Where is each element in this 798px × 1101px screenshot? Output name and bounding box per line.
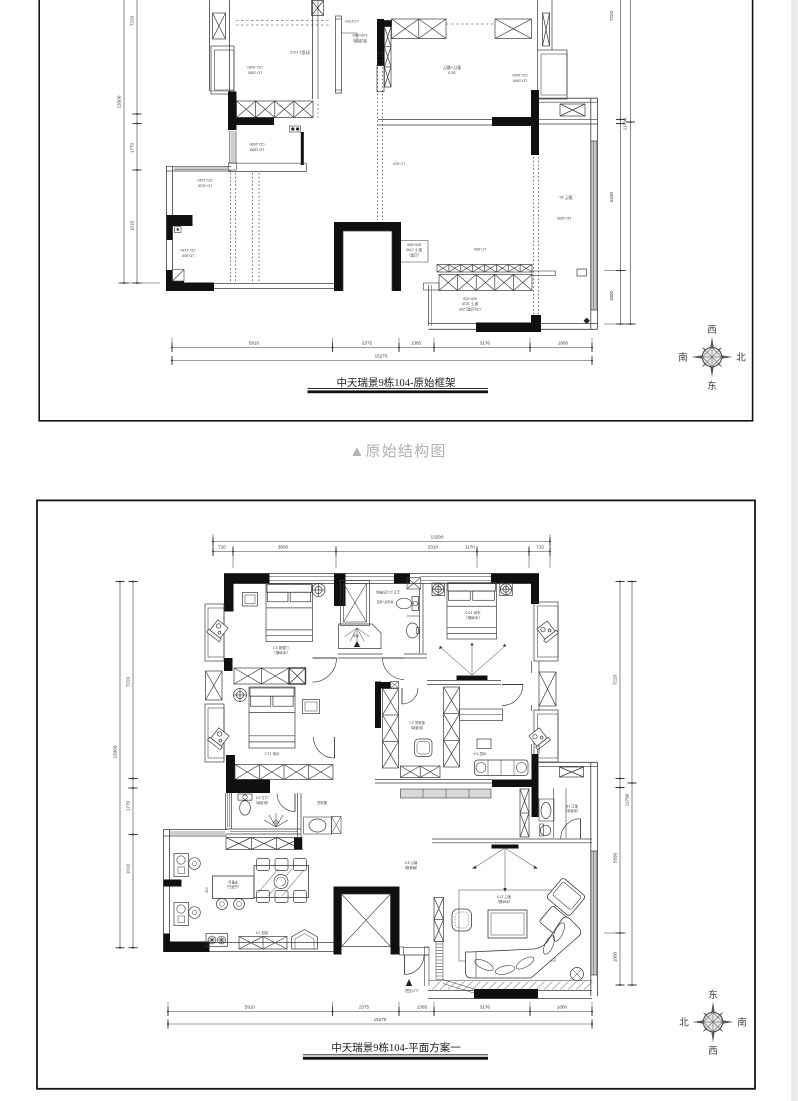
svg-text:1385: 1385	[417, 1005, 428, 1010]
svg-text:南: 南	[678, 352, 688, 364]
svg-text:LD-1690: LD-1690	[248, 71, 263, 75]
svg-text:140+640: 140+640	[353, 33, 368, 37]
svg-text:(餐桌椅): (餐桌椅)	[405, 866, 417, 871]
svg-text:2375: 2375	[362, 341, 373, 346]
svg-text:7220: 7220	[130, 15, 135, 26]
svg-text:400: 400	[205, 887, 209, 893]
svg-text:东: 东	[708, 989, 718, 1001]
svg-text:儿童房 9.2: 儿童房 9.2	[273, 645, 290, 650]
svg-text:(防滑砖): (防滑砖)	[411, 726, 423, 731]
svg-text:家政区 3.1: 家政区 3.1	[409, 721, 425, 726]
svg-text:客卫 3.8: 客卫 3.8	[566, 804, 578, 809]
svg-text:餐厅 8.9: 餐厅 8.9	[405, 861, 418, 866]
svg-text:LD-1690: LD-1690	[250, 148, 265, 152]
svg-text:公卫 3.5: 公卫 3.5	[256, 796, 268, 800]
svg-text:1860: 1860	[557, 1005, 568, 1010]
svg-text:(石英石): (石英石)	[227, 885, 239, 890]
svg-text:LC-610: LC-610	[393, 161, 405, 165]
svg-text:3170: 3170	[480, 1005, 491, 1010]
svg-text:13300: 13300	[117, 95, 122, 108]
svg-text:西: 西	[707, 325, 717, 336]
svg-text:CD-1690: CD-1690	[249, 142, 264, 146]
svg-text:南: 南	[737, 1017, 747, 1029]
svg-text:客厅+餐厅: 客厅+餐厅	[443, 65, 461, 71]
svg-text:主卧 15.6: 主卧 15.6	[465, 610, 480, 615]
svg-text:中天瑞景9栋104-原始框架: 中天瑞景9栋104-原始框架	[337, 376, 456, 389]
svg-text:客厅 27.9: 客厅 27.9	[497, 895, 511, 900]
svg-text:1010: 1010	[130, 220, 135, 231]
svg-text:15270: 15270	[374, 1017, 387, 1022]
svg-text:1010: 1010	[126, 863, 131, 874]
svg-text:800+600: 800+600	[407, 242, 421, 246]
svg-text:淋浴: 淋浴	[353, 634, 359, 639]
svg-text:5910: 5910	[245, 1005, 256, 1010]
svg-text:东: 东	[707, 380, 717, 392]
svg-text:主卫 3.2 (防滑砖): 主卫 3.2 (防滑砖)	[376, 590, 400, 595]
svg-text:11790: 11790	[625, 793, 630, 806]
svg-text:1800: 1800	[613, 951, 618, 962]
svg-text:卧室2 12.6: 卧室2 12.6	[290, 50, 310, 56]
svg-text:(过梁): (过梁)	[409, 253, 419, 258]
svg-text:7220: 7220	[613, 674, 618, 685]
svg-text:LC-600: LC-600	[474, 247, 486, 251]
svg-text:3660: 3660	[278, 545, 289, 550]
svg-text:1385: 1385	[411, 341, 422, 346]
svg-text:盥洗区: 盥洗区	[316, 801, 327, 806]
svg-text:LD-1120: LD-1120	[198, 184, 212, 188]
svg-text:420+250: 420+250	[463, 296, 477, 300]
svg-text:北: 北	[679, 1018, 689, 1029]
svg-text:淋浴房+浴缸: 淋浴房+浴缸	[377, 600, 394, 605]
svg-text:1860: 1860	[558, 341, 569, 346]
svg-text:7220: 7220	[126, 676, 131, 687]
svg-text:5330: 5330	[609, 191, 614, 202]
svg-text:厨房 7.6: 厨房 7.6	[256, 931, 268, 936]
svg-text:13300: 13300	[113, 745, 118, 758]
svg-text:1800: 1800	[609, 290, 614, 301]
svg-text:西: 西	[708, 1046, 718, 1057]
svg-text:11790: 11790	[623, 117, 628, 130]
svg-text:书房 5.4: 书房 5.4	[473, 751, 486, 756]
svg-text:入户花园: 入户花园	[405, 989, 419, 994]
svg-text:梁下 1700: 梁下 1700	[406, 248, 422, 253]
svg-text:次卧 11.2: 次卧 11.2	[265, 751, 280, 756]
svg-text:CD-1140: CD-1140	[198, 178, 213, 182]
svg-text:28.9: 28.9	[447, 71, 456, 76]
svg-text:1770: 1770	[126, 800, 131, 811]
svg-text:13290: 13290	[431, 535, 444, 540]
svg-text:CD(过梁) 220: CD(过梁) 220	[459, 307, 481, 312]
svg-text:(防滑砖): (防滑砖)	[566, 809, 578, 814]
svg-text:LD-1690: LD-1690	[557, 216, 572, 220]
svg-text:梁(到顶): 梁(到顶)	[352, 39, 367, 44]
svg-text:(木地板): (木地板)	[466, 616, 479, 621]
svg-text:▲原始结构图: ▲原始结构图	[349, 443, 446, 460]
svg-text:(木地板): (木地板)	[274, 651, 287, 656]
svg-text:710: 710	[218, 545, 226, 550]
svg-text:LD-1690: LD-1690	[513, 79, 528, 83]
svg-text:LD-920: LD-920	[182, 254, 194, 258]
svg-text:客厅 26: 客厅 26	[560, 195, 573, 200]
svg-text:(防滑砖): (防滑砖)	[256, 801, 268, 806]
svg-text:5330: 5330	[613, 852, 618, 863]
svg-text:CD-1140: CD-1140	[181, 248, 196, 252]
svg-text:3170: 3170	[480, 341, 491, 346]
svg-text:梁下 1010: 梁下 1010	[462, 302, 478, 307]
svg-text:早餐台: 早餐台	[228, 880, 238, 885]
svg-text:CD-1690: CD-1690	[512, 73, 527, 77]
svg-text:7220: 7220	[609, 10, 614, 21]
svg-text:(木地板): (木地板)	[498, 900, 510, 905]
svg-text:15270: 15270	[375, 354, 388, 359]
svg-text:中天瑞景9栋104-平面方案一: 中天瑞景9栋104-平面方案一	[331, 1041, 461, 1054]
svg-text:2375: 2375	[359, 1005, 370, 1010]
svg-text:710: 710	[536, 545, 544, 550]
svg-text:5910: 5910	[249, 341, 260, 346]
svg-text:LC2750: LC2750	[345, 19, 358, 23]
svg-text:CD-1690: CD-1690	[247, 65, 262, 69]
svg-text:北: 北	[736, 353, 746, 364]
svg-text:2310: 2310	[428, 545, 439, 550]
svg-text:1170: 1170	[465, 545, 475, 550]
svg-text:1770: 1770	[130, 142, 135, 153]
